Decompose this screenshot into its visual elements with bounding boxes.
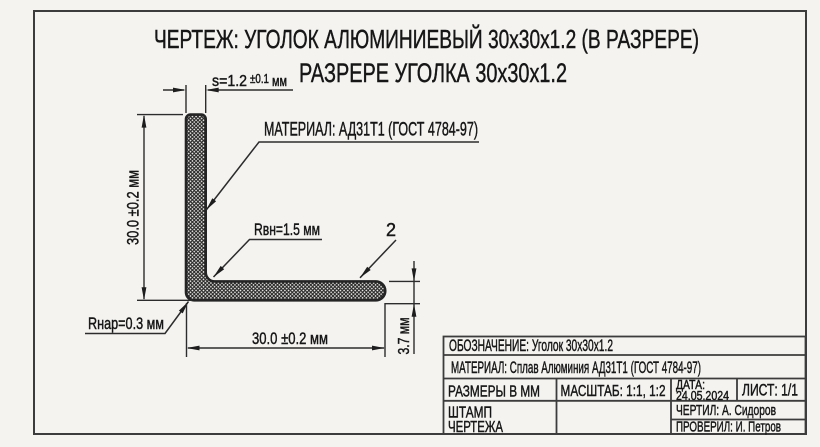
svg-text:Rвн=1.5 мм: Rвн=1.5 мм [254,220,320,239]
svg-text:±0.1: ±0.1 [250,72,269,86]
svg-text:Rнар=0.3 мм: Rнар=0.3 мм [88,314,164,333]
svg-text:2: 2 [386,220,396,240]
svg-text:РАЗРЕРЕ УГОЛКА 30х30х1.2: РАЗРЕРЕ УГОЛКА 30х30х1.2 [299,58,567,88]
svg-text:24.05.2024: 24.05.2024 [676,388,729,403]
svg-text:ОБОЗНАЧЕНИЕ: Уголок 30х30х1.2: ОБОЗНАЧЕНИЕ: Уголок 30х30х1.2 [449,337,613,355]
svg-text:3.7 мм: 3.7 мм [396,318,413,355]
svg-text:мм: мм [272,74,287,90]
svg-text:МАСШТАБ: 1:1, 1:2: МАСШТАБ: 1:1, 1:2 [561,383,666,400]
svg-text:s=1.2: s=1.2 [212,73,247,90]
svg-text:МАТЕРИАЛ: АД31Т1 (ГОСТ 4784-97: МАТЕРИАЛ: АД31Т1 (ГОСТ 4784-97) [264,119,478,140]
svg-text:ЛИСТ: 1/1: ЛИСТ: 1/1 [742,382,798,400]
svg-text:МАТЕРИАЛ: Сплав Алюминия АД31: МАТЕРИАЛ: Сплав Алюминия АД31Т1 (ГОСТ 47… [451,359,701,377]
svg-text:ЧЕРТИЛ: А. Сидоров: ЧЕРТИЛ: А. Сидоров [676,402,776,419]
svg-text:30.0 ±0.2 мм: 30.0 ±0.2 мм [124,170,143,245]
svg-text:ЧЕРТЕЖ: УГОЛОК АЛЮМИНИЕВЫЙ 30х: ЧЕРТЕЖ: УГОЛОК АЛЮМИНИЕВЫЙ 30х30х1.2 (В … [154,24,699,54]
svg-text:ЧЕРТЕЖА: ЧЕРТЕЖА [448,419,503,436]
svg-text:ПРОВЕРИЛ: И. Петров: ПРОВЕРИЛ: И. Петров [676,419,781,436]
svg-text:30.0 ±0.2 мм: 30.0 ±0.2 мм [252,329,328,348]
svg-text:РАЗМЕРЫ В ММ: РАЗМЕРЫ В ММ [448,384,540,401]
